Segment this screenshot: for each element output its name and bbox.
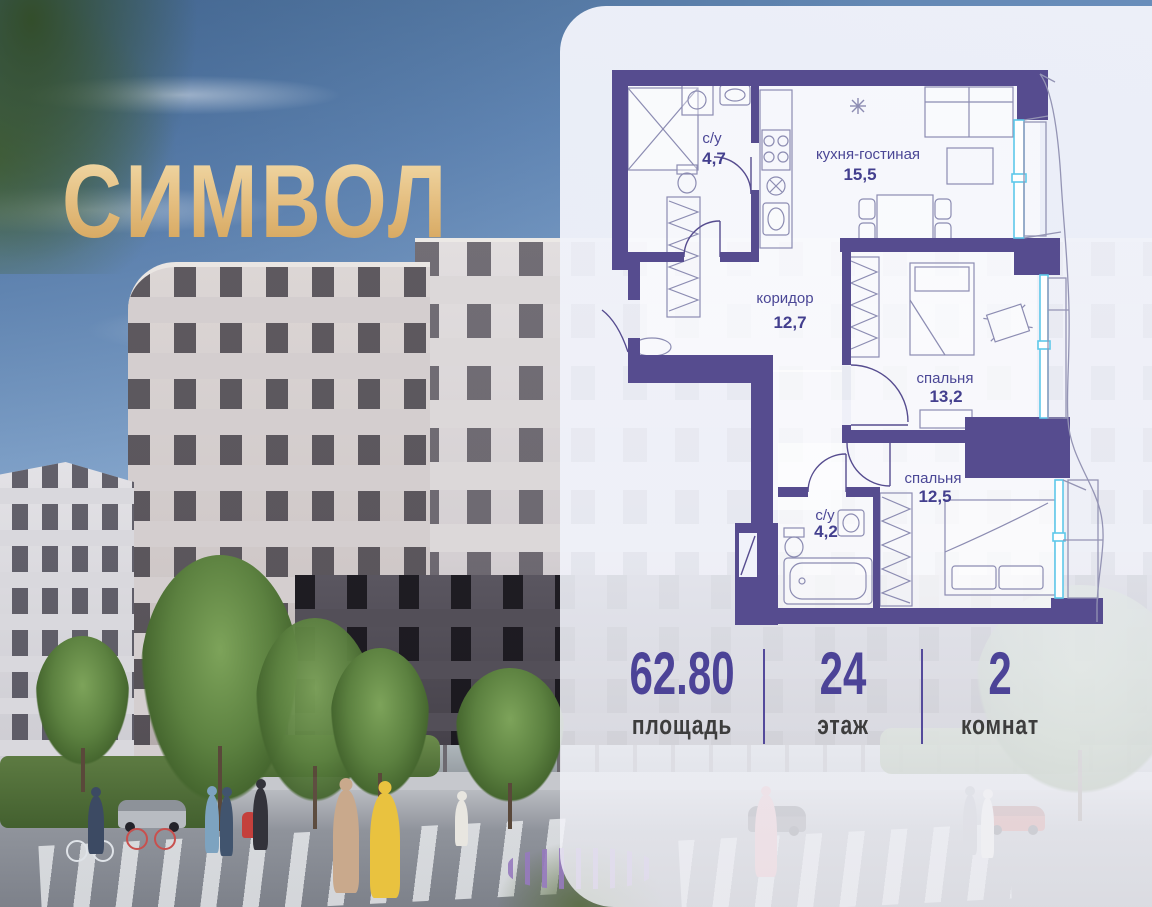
room-area-bedroom-2: 12,5 bbox=[918, 487, 951, 506]
stat-area-value: 62.80 bbox=[612, 645, 752, 702]
stats-divider bbox=[763, 649, 765, 744]
floor-plan: с/у 4,7 кухня-гостиная 15,5 коридор 12,7… bbox=[600, 60, 1152, 640]
room-name-bedroom-2: спальня bbox=[905, 470, 962, 487]
room-area-kitchen-living: 15,5 bbox=[843, 165, 876, 184]
room-area-corridor: 12,7 bbox=[773, 313, 806, 332]
room-area-bathroom-1: 4,7 bbox=[702, 149, 726, 168]
pedestrian-yellow-dress bbox=[370, 793, 400, 898]
pedestrian bbox=[205, 795, 219, 853]
stat-floor-value: 24 bbox=[794, 645, 892, 702]
stat-rooms-value: 2 bbox=[944, 645, 1056, 702]
stat-rooms: 2 комнат bbox=[920, 645, 1080, 741]
pedestrian bbox=[253, 788, 268, 850]
bicycle-red bbox=[126, 826, 176, 850]
listing-card[interactable]: СИМВОЛ bbox=[0, 0, 1152, 907]
stat-area-label: площадь bbox=[604, 710, 760, 741]
room-name-bedroom-1: спальня bbox=[917, 370, 974, 387]
pedestrian bbox=[88, 796, 104, 854]
stat-floor-label: этаж bbox=[788, 710, 897, 741]
tree bbox=[35, 636, 130, 766]
stat-rooms-label: комнат bbox=[938, 710, 1063, 741]
room-name-bathroom-1: с/у bbox=[702, 130, 722, 147]
stats-bar: 62.80 площадь 24 этаж 2 комнат bbox=[560, 645, 1152, 760]
lamp-icon bbox=[850, 98, 866, 114]
room-area-bedroom-1: 13,2 bbox=[929, 387, 962, 406]
tree bbox=[455, 668, 565, 803]
room-name-kitchen-living: кухня-гостиная bbox=[816, 146, 920, 163]
room-area-bathroom-2: 4,2 bbox=[814, 522, 838, 541]
tree bbox=[330, 648, 430, 798]
car-gray bbox=[118, 800, 186, 828]
pedestrian bbox=[220, 796, 233, 856]
pedestrian bbox=[455, 800, 468, 846]
pedestrian-beige-coat bbox=[333, 790, 359, 893]
info-panel: с/у 4,7 кухня-гостиная 15,5 коридор 12,7… bbox=[560, 6, 1152, 907]
brand-logo: СИМВОЛ bbox=[62, 150, 449, 254]
room-name-corridor: коридор bbox=[756, 290, 813, 307]
stat-area: 62.80 площадь bbox=[582, 645, 782, 741]
stat-floor: 24 этаж bbox=[773, 645, 913, 741]
